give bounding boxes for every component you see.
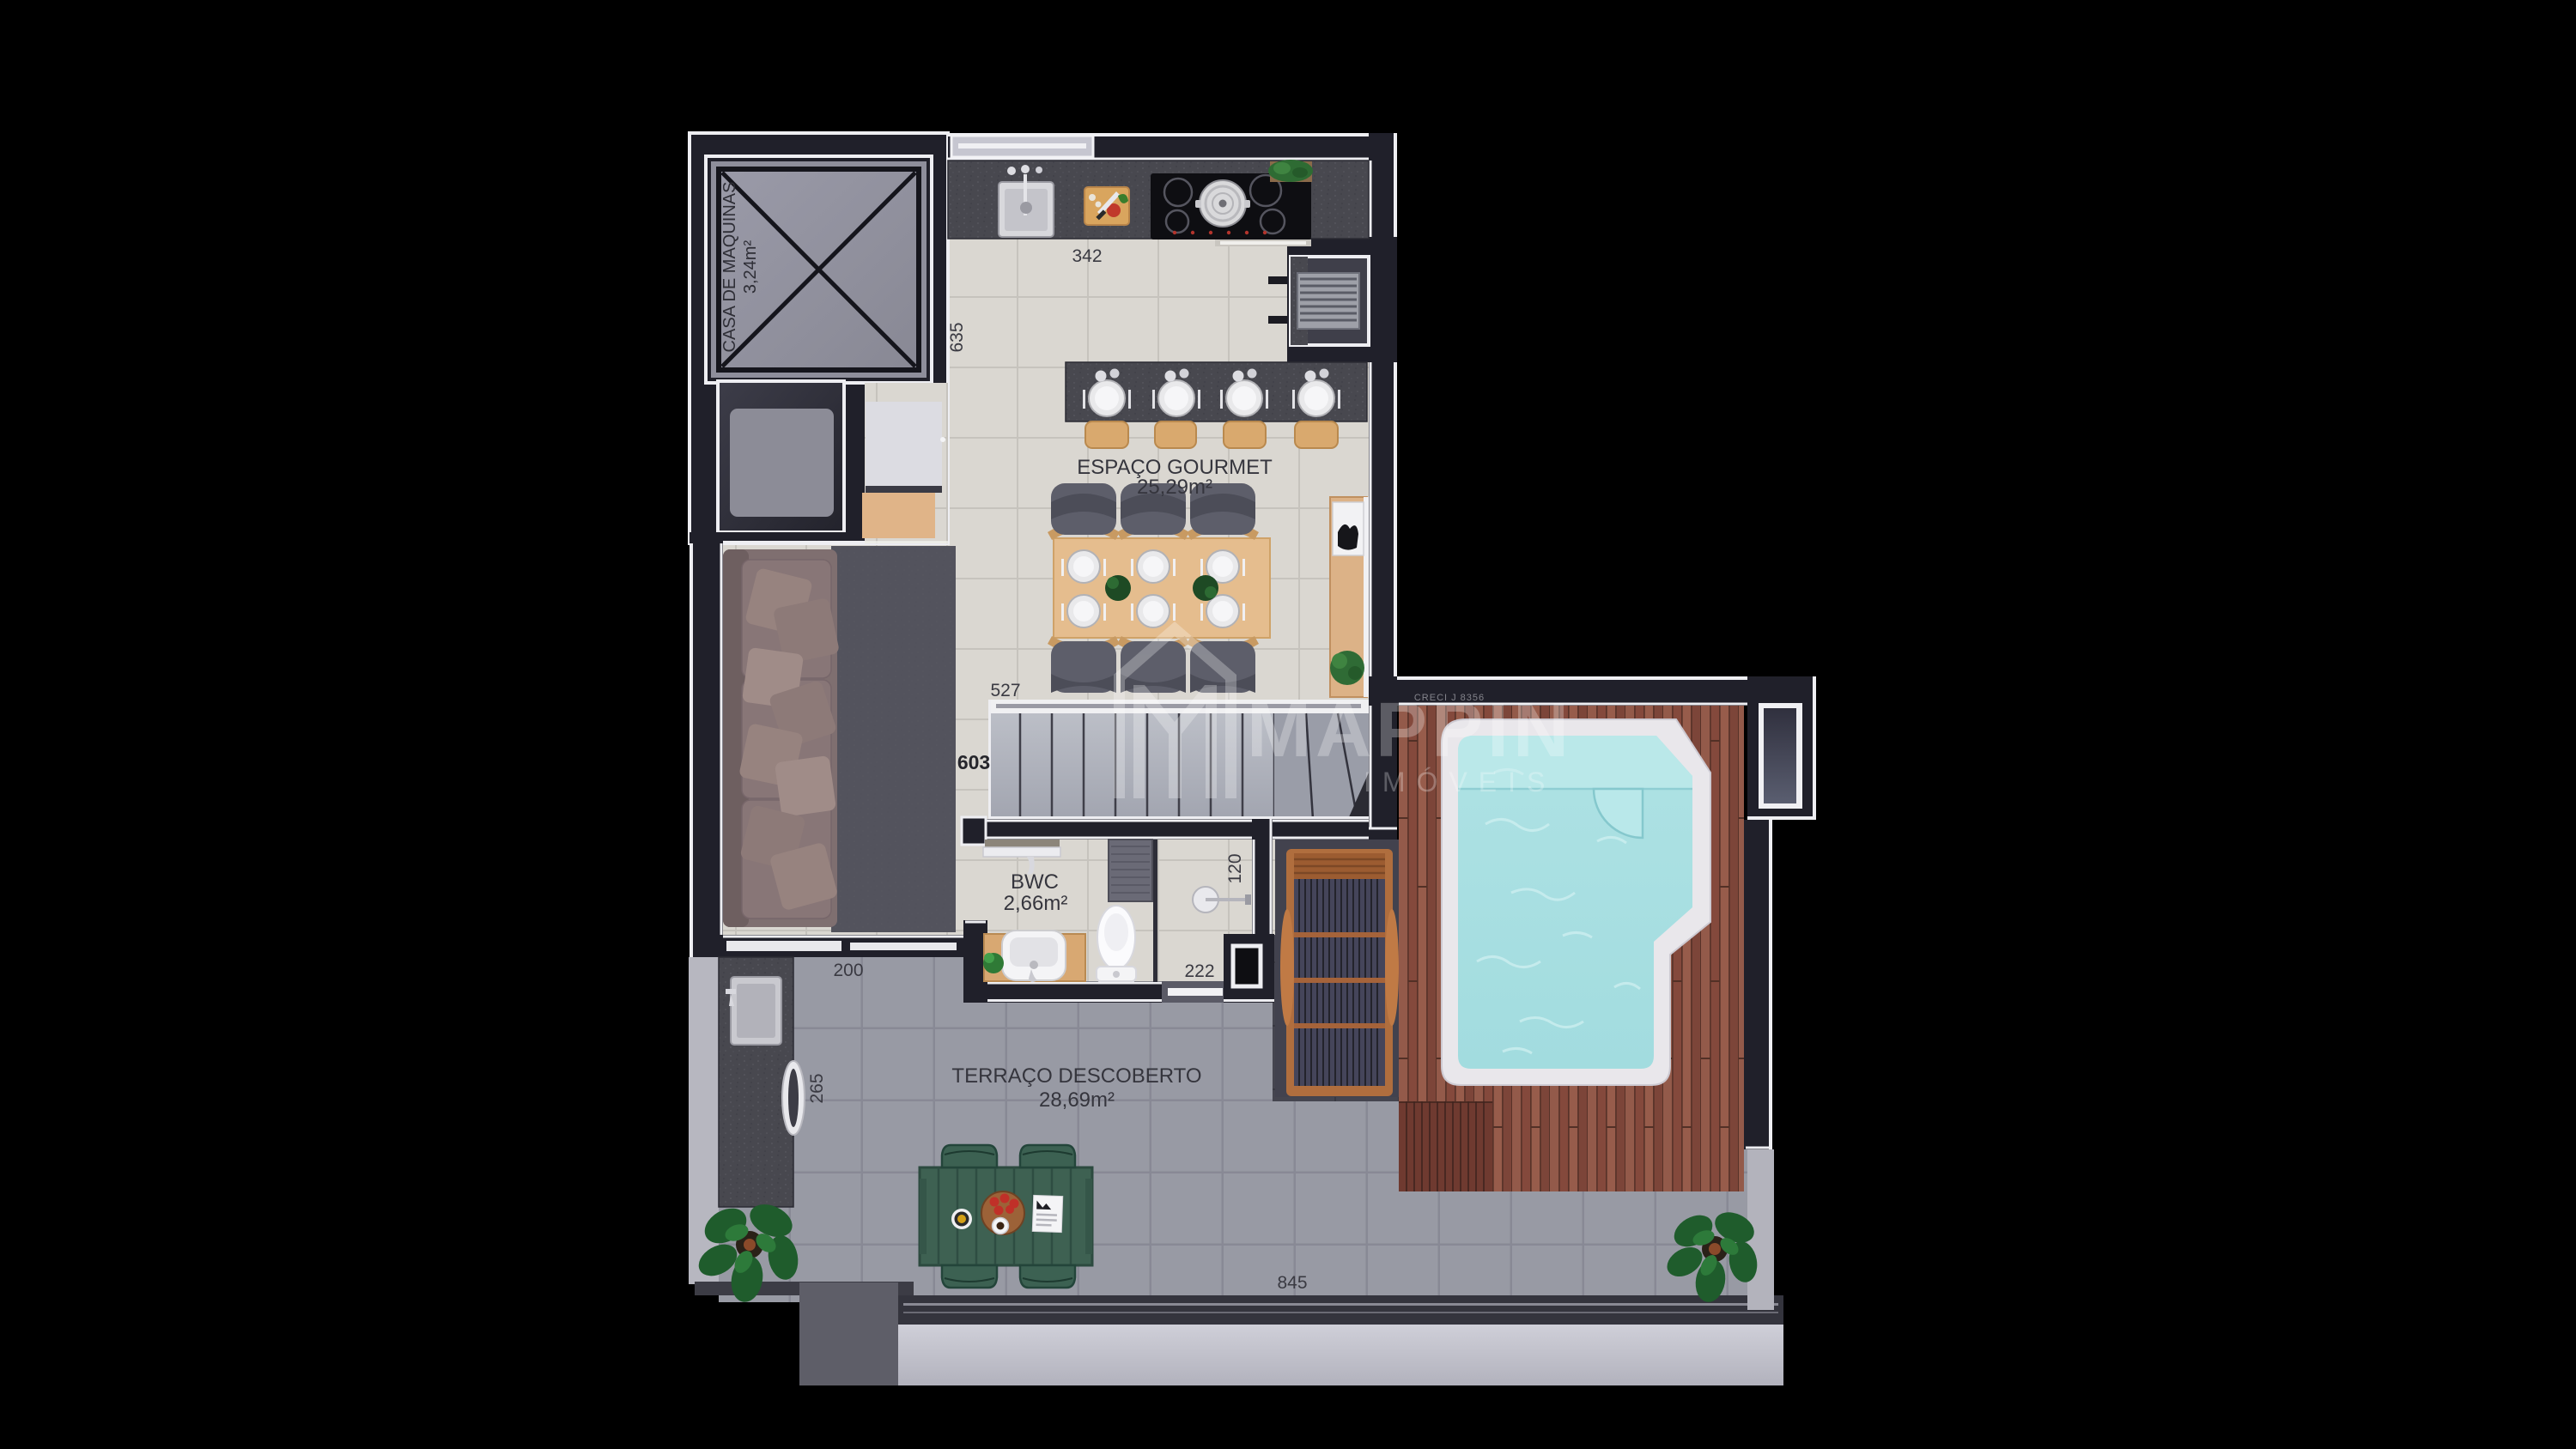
svg-text:BWC: BWC xyxy=(1011,870,1059,894)
svg-text:25,29m²: 25,29m² xyxy=(1137,476,1212,499)
svg-text:222: 222 xyxy=(1184,961,1214,981)
svg-text:603: 603 xyxy=(957,751,990,773)
svg-text:28,69m²: 28,69m² xyxy=(1039,1088,1115,1112)
svg-text:200: 200 xyxy=(833,961,863,980)
svg-text:MAPPIN: MAPPIN xyxy=(1247,688,1573,773)
svg-text:120: 120 xyxy=(1225,853,1245,883)
svg-text:845: 845 xyxy=(1277,1273,1307,1293)
svg-text:TERRAÇO DESCOBERTO: TERRAÇO DESCOBERTO xyxy=(951,1064,1201,1088)
svg-text:2,66m²: 2,66m² xyxy=(1004,892,1068,915)
svg-text:342: 342 xyxy=(1072,246,1102,266)
svg-text:265: 265 xyxy=(807,1073,827,1103)
svg-text:635: 635 xyxy=(947,322,967,352)
svg-text:IMÓVEIS: IMÓVEIS xyxy=(1364,767,1556,797)
svg-text:527: 527 xyxy=(990,681,1020,700)
